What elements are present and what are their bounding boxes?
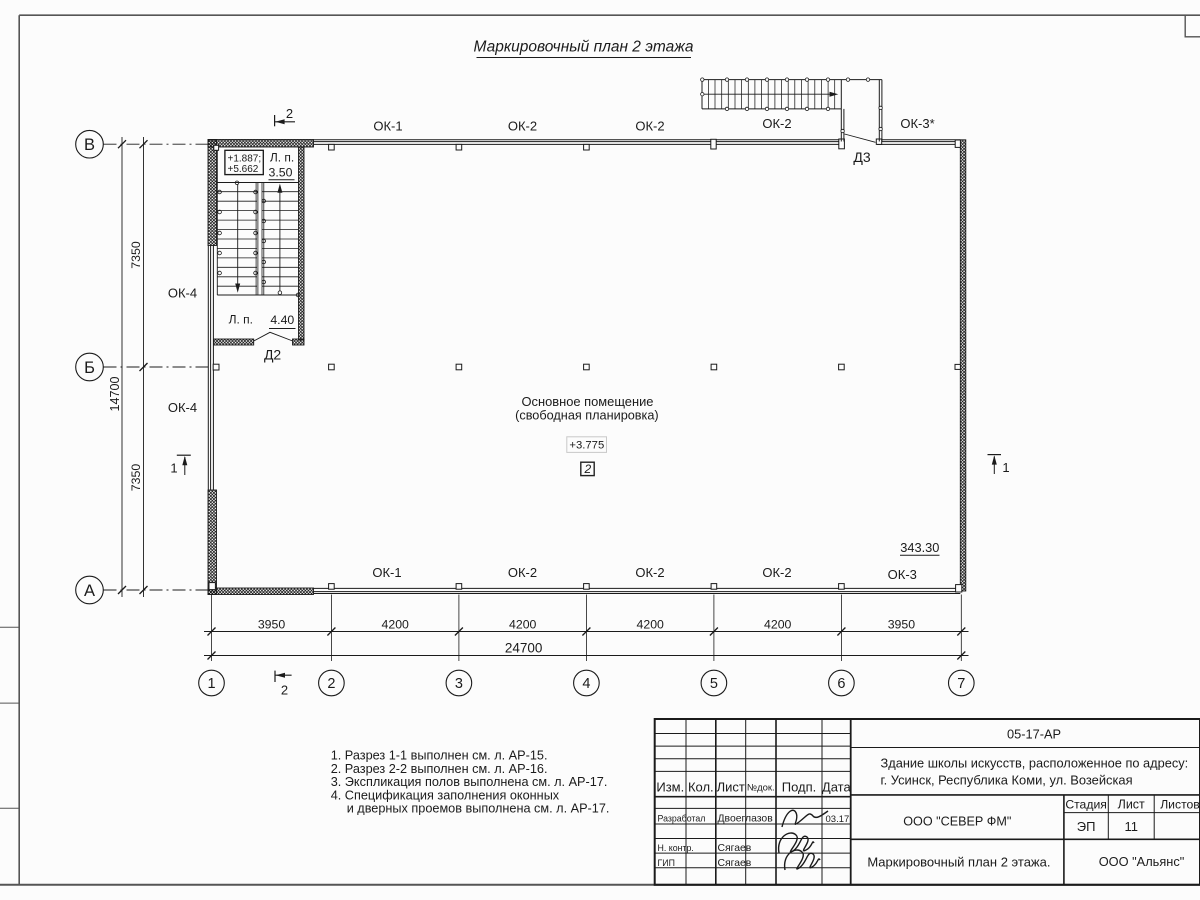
svg-text:В: В [84, 136, 95, 154]
svg-text:ЭП: ЭП [1077, 819, 1096, 834]
svg-text:4200: 4200 [509, 617, 537, 631]
svg-text:11: 11 [1124, 819, 1138, 834]
svg-text:24700: 24700 [505, 641, 543, 656]
svg-text:Н. контр.: Н. контр. [658, 843, 694, 853]
svg-text:г. Усинск, Республика Коми, ул: г. Усинск, Республика Коми, ул. Возейска… [881, 773, 1133, 788]
svg-text:Сягаев: Сягаев [718, 843, 752, 854]
svg-text:05-17-АР: 05-17-АР [1007, 727, 1061, 742]
svg-text:6: 6 [837, 676, 845, 692]
svg-text:4200: 4200 [382, 617, 410, 631]
svg-text:№док.: №док. [747, 783, 775, 794]
svg-text:ООО "СЕВЕР ФМ": ООО "СЕВЕР ФМ" [903, 815, 1011, 829]
svg-text:ОК-3*: ОК-3* [900, 116, 934, 131]
svg-text:Стадия: Стадия [1065, 798, 1107, 812]
svg-text:3: 3 [455, 676, 463, 692]
svg-text:03.17: 03.17 [826, 814, 850, 825]
svg-text:Листов: Листов [1160, 798, 1200, 812]
svg-text:ОК-2: ОК-2 [762, 116, 791, 131]
svg-text:Разработал: Разработал [658, 814, 706, 824]
svg-text:2: 2 [281, 683, 288, 698]
svg-text:Изм.: Изм. [656, 780, 684, 795]
svg-text:4: 4 [582, 676, 590, 692]
svg-text:2. Разрез 2-2 выполнен см. л.: 2. Разрез 2-2 выполнен см. л. АР-16. [331, 762, 548, 776]
svg-text:ООО "Альянс": ООО "Альянс" [1099, 854, 1185, 869]
svg-text:ОК-2: ОК-2 [762, 565, 791, 580]
svg-text:ОК-2: ОК-2 [508, 565, 537, 580]
svg-text:Маркировочный план 2 этажа: Маркировочный план 2 этажа [474, 39, 694, 56]
svg-text:4.40: 4.40 [270, 313, 294, 327]
svg-text:Основное помещение: Основное помещение [522, 394, 654, 409]
svg-text:(свободная планировка): (свободная планировка) [515, 409, 659, 423]
svg-text:ОК-4: ОК-4 [168, 400, 197, 415]
svg-text:Дата: Дата [822, 780, 852, 795]
svg-text:Сягаев: Сягаев [718, 858, 752, 869]
svg-text:4. Спецификация заполнения око: 4. Спецификация заполнения оконных [331, 788, 560, 802]
svg-text:и дверных проемов выполнена см: и дверных проемов выполнена см. л. АР-17… [347, 802, 610, 816]
svg-text:ОК-2: ОК-2 [508, 119, 537, 134]
svg-text:Лист: Лист [1118, 798, 1145, 812]
svg-text:4200: 4200 [637, 617, 665, 631]
svg-text:Подп.: Подп. [782, 780, 817, 795]
svg-text:3950: 3950 [888, 617, 916, 631]
svg-text:3950: 3950 [258, 617, 286, 631]
svg-text:Д2: Д2 [264, 347, 281, 363]
svg-text:Кол.: Кол. [688, 780, 714, 795]
svg-text:3. Экспликация полов выполнена: 3. Экспликация полов выполнена см. л. АР… [331, 775, 608, 789]
svg-text:Л. п.: Л. п. [229, 313, 253, 327]
svg-text:1. Разрез 1-1 выполнен см. л.: 1. Разрез 1-1 выполнен см. л. АР-15. [331, 749, 548, 763]
svg-text:+5.662: +5.662 [228, 164, 259, 175]
svg-text:+1.887;: +1.887; [228, 153, 262, 164]
svg-text:Д3: Д3 [853, 149, 870, 165]
svg-text:+3.775: +3.775 [569, 440, 604, 452]
svg-text:3.50: 3.50 [269, 166, 293, 180]
svg-text:ГИП: ГИП [658, 858, 675, 868]
svg-text:1: 1 [207, 676, 215, 692]
svg-text:1: 1 [1002, 460, 1009, 475]
svg-text:Здание школы искусств, располо: Здание школы искусств, расположенное по … [881, 756, 1189, 771]
svg-text:343.30: 343.30 [900, 540, 939, 555]
svg-text:Б: Б [84, 359, 95, 377]
svg-text:7350: 7350 [129, 241, 143, 269]
svg-text:Двоеглазов: Двоеглазов [718, 814, 774, 825]
svg-text:ОК-1: ОК-1 [373, 119, 402, 134]
svg-text:Л. п.: Л. п. [270, 151, 294, 165]
svg-text:2: 2 [327, 676, 335, 692]
svg-text:Лист: Лист [717, 780, 745, 795]
svg-text:Маркировочный план 2 этажа.: Маркировочный план 2 этажа. [867, 855, 1050, 870]
svg-text:2: 2 [583, 462, 591, 476]
svg-text:4200: 4200 [764, 617, 792, 631]
svg-text:ОК-3: ОК-3 [888, 567, 917, 582]
svg-text:ОК-2: ОК-2 [635, 565, 664, 580]
svg-text:ОК-2: ОК-2 [635, 119, 664, 134]
svg-text:2: 2 [286, 106, 293, 121]
svg-text:7350: 7350 [129, 464, 143, 492]
svg-text:7: 7 [957, 676, 965, 692]
svg-text:1: 1 [170, 461, 177, 476]
svg-text:14700: 14700 [108, 376, 122, 411]
svg-text:А: А [84, 582, 95, 600]
svg-text:ОК-1: ОК-1 [372, 565, 401, 580]
svg-text:ОК-4: ОК-4 [168, 286, 197, 301]
svg-text:5: 5 [710, 676, 718, 692]
